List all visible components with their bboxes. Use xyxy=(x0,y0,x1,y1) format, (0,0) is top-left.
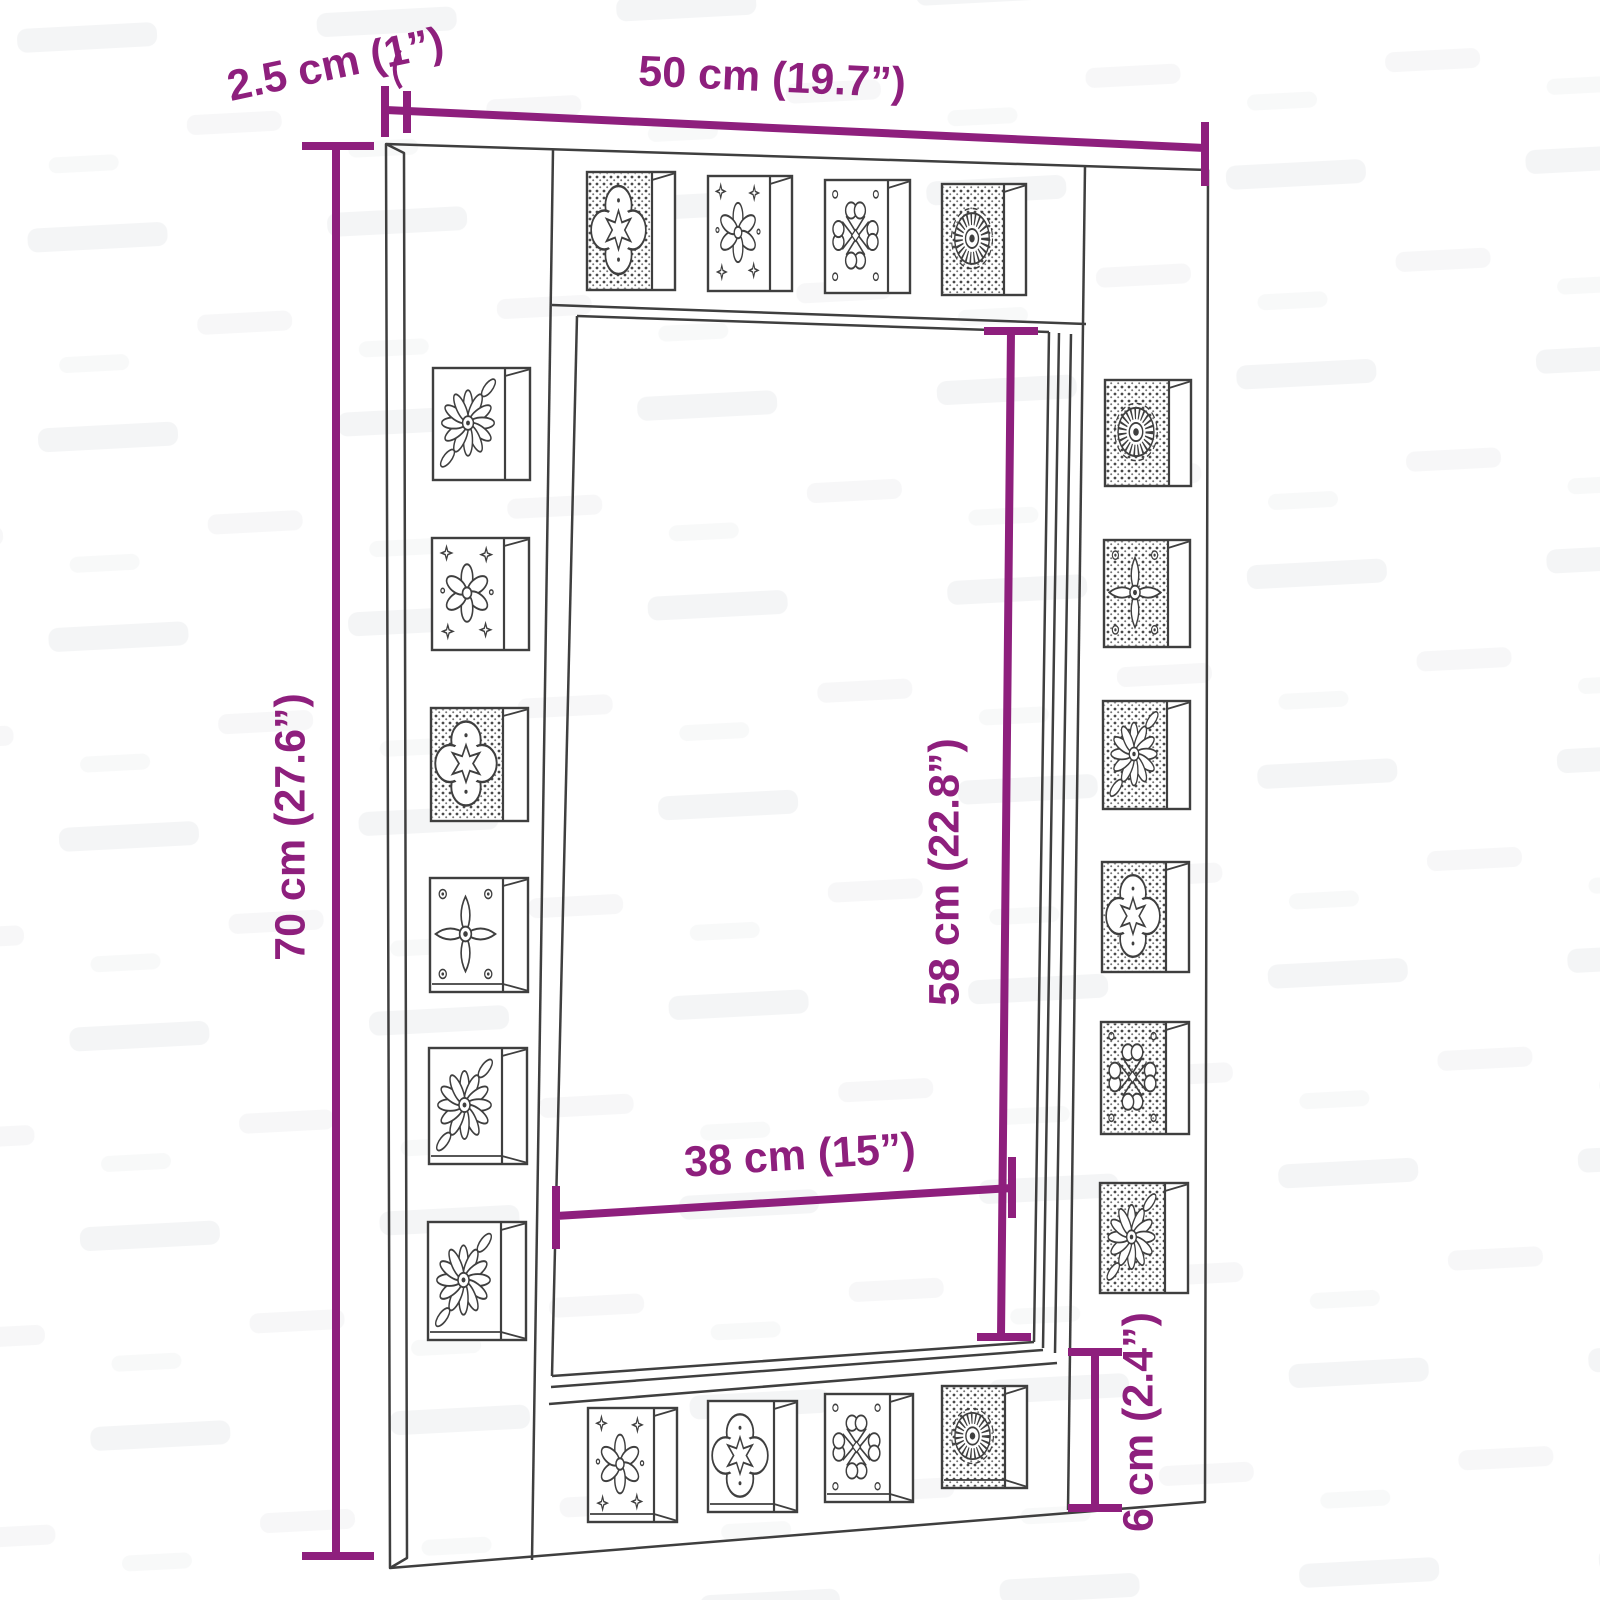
decorative-tile xyxy=(708,176,792,291)
decorative-tile xyxy=(429,1048,527,1164)
background-watermark xyxy=(0,0,1600,1600)
decorative-tile xyxy=(708,1401,797,1512)
decorative-tile xyxy=(428,1222,526,1340)
decorative-tile xyxy=(432,538,529,650)
dimension-label-overall-height: 70 cm (27.6”) xyxy=(266,693,314,961)
decorative-tile xyxy=(431,708,528,821)
dimension-label-mirror-height: 58 cm (22.8”) xyxy=(920,738,968,1006)
decorative-tile xyxy=(588,1408,677,1522)
decorative-tile xyxy=(1102,862,1189,972)
decorative-tile xyxy=(1101,1022,1189,1134)
decorative-tile xyxy=(1100,1183,1188,1293)
product-dimension-image: 70 cm (27.6”) 2.5 cm (1”) 50 cm (19.7”) … xyxy=(0,0,1600,1600)
decorative-tile xyxy=(1105,380,1191,486)
mirror-dimension-drawing: 70 cm (27.6”) 2.5 cm (1”) 50 cm (19.7”) … xyxy=(0,0,1600,1600)
decorative-tile xyxy=(825,180,910,293)
decorative-tile xyxy=(430,878,528,992)
dimension-label-bottom-border: 6 cm (2.4”) xyxy=(1114,1312,1162,1532)
decorative-tile xyxy=(433,368,530,480)
decorative-tile xyxy=(942,184,1026,295)
decorative-tile xyxy=(942,1386,1027,1488)
decorative-tile xyxy=(825,1394,913,1502)
decorative-tile xyxy=(1103,701,1190,809)
decorative-tile xyxy=(587,172,675,290)
decorative-tile xyxy=(1104,540,1190,647)
